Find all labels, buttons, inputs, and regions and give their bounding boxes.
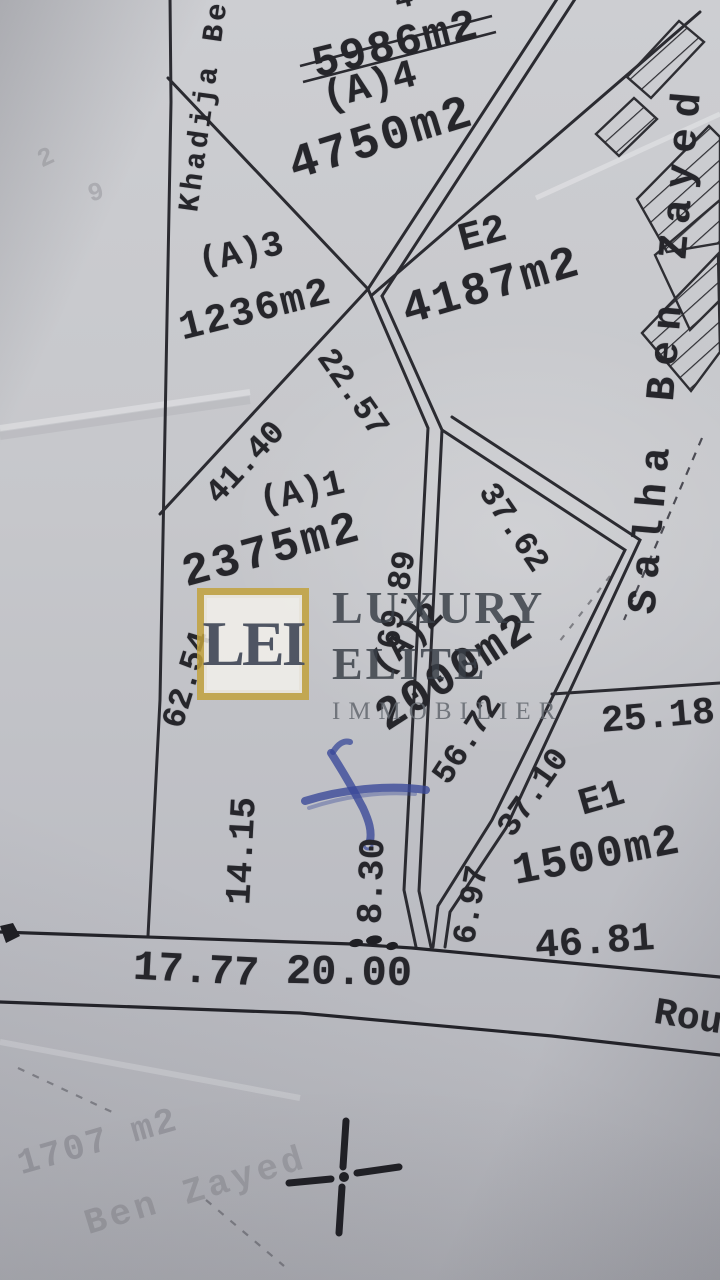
measurement-14-15: 14.15 — [222, 796, 264, 906]
lei-monogram: LEI — [202, 612, 303, 676]
logo-word-luxury: LUXURY — [332, 580, 563, 636]
logo-watermark: LEI LUXURY ELITE IMMOBILIER — [190, 580, 550, 730]
logo-word-elite: ELITE — [332, 636, 563, 692]
measurement-25-18: 25.18 — [600, 694, 717, 742]
road-label: Rou — [651, 995, 720, 1043]
measurement-20-00: 20.00 — [286, 951, 413, 995]
logo-word-immobilier: IMMOBILIER — [332, 698, 563, 726]
measurement-17-77: 17.77 — [132, 947, 260, 996]
measurement-8-30: 8.30 — [354, 837, 393, 925]
scanned-survey-plan: Khadija Ben Salha Ben Zayed 5986m2 4 (A)… — [0, 0, 720, 1280]
lei-monogram-box: LEI — [197, 588, 309, 700]
measurement-46-81: 46.81 — [534, 920, 657, 968]
logo-wordmark: LUXURY ELITE IMMOBILIER — [332, 580, 563, 726]
